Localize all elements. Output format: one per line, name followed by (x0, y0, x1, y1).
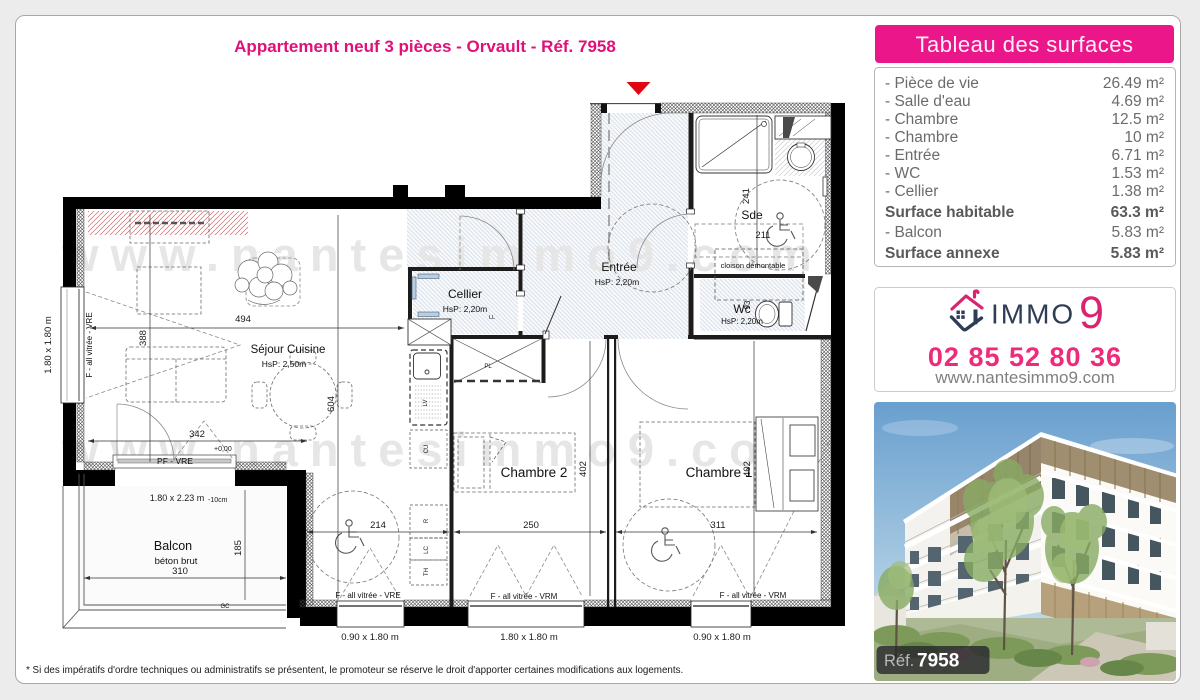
svg-text:Surface annexe: Surface annexe (885, 245, 1000, 262)
svg-text:IMMO: IMMO (991, 299, 1075, 330)
svg-text:Balcon: Balcon (154, 539, 192, 553)
svg-text:TH: TH (424, 568, 430, 576)
svg-text:cloison démontable: cloison démontable (721, 261, 786, 270)
svg-text:310: 310 (172, 566, 188, 577)
svg-text:- Entrée: - Entrée (885, 147, 940, 164)
svg-text:PF - VRE: PF - VRE (157, 456, 193, 466)
svg-text:- Chambre: - Chambre (885, 129, 958, 146)
svg-text:250: 250 (523, 520, 539, 531)
svg-text:F - all vitrée - VRE: F - all vitrée - VRE (85, 312, 94, 377)
svg-text:7958: 7958 (917, 651, 959, 672)
svg-text:- Chambre: - Chambre (885, 111, 958, 128)
svg-text:- Pièce de vie: - Pièce de vie (885, 75, 979, 92)
svg-text:* Si des impératifs d'ordre te: * Si des impératifs d'ordre techniques o… (26, 665, 683, 676)
svg-text:12.5 m²: 12.5 m² (1111, 111, 1164, 128)
svg-text:www.nantesimmo9.com: www.nantesimmo9.com (61, 228, 824, 281)
svg-text:www.nantesimmo9.com: www.nantesimmo9.com (934, 368, 1115, 387)
svg-text:311: 311 (710, 520, 725, 531)
svg-text:0.90 x 1.80 m: 0.90 x 1.80 m (693, 632, 751, 643)
svg-text:- Cellier: - Cellier (885, 183, 938, 200)
svg-text:1.80 x 2.23 m: 1.80 x 2.23 m (150, 493, 205, 503)
svg-text:1.80 x 1.80 m: 1.80 x 1.80 m (43, 316, 54, 374)
svg-text:HsP: 2,20m: HsP: 2,20m (721, 317, 763, 326)
svg-text:604: 604 (326, 396, 337, 412)
svg-text:GC: GC (221, 604, 231, 610)
svg-text:241: 241 (741, 188, 752, 204)
svg-text:0.90 x 1.80 m: 0.90 x 1.80 m (341, 632, 399, 643)
svg-text:5.83 m²: 5.83 m² (1111, 224, 1164, 241)
svg-text:Chambre 2: Chambre 2 (501, 465, 568, 480)
svg-text:béton brut: béton brut (155, 556, 198, 567)
svg-text:LC: LC (424, 545, 430, 553)
svg-text:4.69 m²: 4.69 m² (1111, 93, 1164, 110)
svg-text:5.83 m²: 5.83 m² (1111, 245, 1164, 262)
svg-text:HsP: 2,50m: HsP: 2,50m (262, 359, 306, 369)
svg-text:- Salle d'eau: - Salle d'eau (885, 93, 971, 110)
svg-text:- Balcon: - Balcon (885, 224, 942, 241)
svg-text:HsP: 2,20m: HsP: 2,20m (443, 304, 487, 314)
svg-text:F - all vitrée - VRE: F - all vitrée - VRE (335, 591, 400, 600)
svg-text:-10cm: -10cm (208, 497, 228, 504)
svg-text:Wc: Wc (733, 302, 750, 316)
svg-text:Chambre 1: Chambre 1 (686, 465, 753, 480)
svg-text:185: 185 (233, 540, 244, 556)
svg-text:F - all vitrée - VRM: F - all vitrée - VRM (720, 591, 787, 600)
svg-text:LV: LV (423, 400, 429, 407)
svg-text:6.71 m²: 6.71 m² (1111, 147, 1164, 164)
svg-text:LL: LL (489, 315, 495, 321)
svg-text:9: 9 (1079, 287, 1104, 338)
svg-text:Surface habitable: Surface habitable (885, 204, 1015, 221)
svg-text:1.38 m²: 1.38 m² (1111, 183, 1164, 200)
svg-text:214: 214 (370, 520, 386, 531)
svg-text:HsP: 2,20m: HsP: 2,20m (595, 277, 639, 287)
svg-text:342: 342 (189, 429, 205, 440)
svg-text:388: 388 (138, 330, 149, 346)
svg-text:F - all vitrée - VRM: F - all vitrée - VRM (491, 592, 558, 601)
svg-text:Appartement neuf 3 pièces - Or: Appartement neuf 3 pièces - Orvault - Ré… (234, 37, 616, 56)
svg-text:Entrée: Entrée (601, 260, 637, 274)
svg-text:10 m²: 10 m² (1124, 129, 1164, 146)
svg-text:Tableau des surfaces: Tableau des surfaces (916, 32, 1134, 57)
svg-text:Séjour Cuisine: Séjour Cuisine (251, 344, 326, 356)
svg-text:CU: CU (424, 445, 430, 454)
svg-text:Réf.: Réf. (884, 652, 914, 670)
svg-text:211: 211 (755, 230, 770, 241)
svg-text:Cellier: Cellier (448, 287, 482, 301)
svg-text:R: R (424, 518, 430, 523)
svg-text:26.49 m²: 26.49 m² (1103, 75, 1164, 92)
svg-text:63.3 m²: 63.3 m² (1111, 204, 1164, 221)
svg-text:402: 402 (578, 461, 589, 477)
svg-text:1.80 x 1.80 m: 1.80 x 1.80 m (500, 632, 558, 643)
svg-text:- WC: - WC (885, 165, 920, 182)
svg-text:1.53 m²: 1.53 m² (1111, 165, 1164, 182)
svg-text:Sde: Sde (741, 208, 763, 222)
svg-text:+0,00: +0,00 (214, 446, 232, 453)
svg-text:494: 494 (235, 314, 251, 325)
